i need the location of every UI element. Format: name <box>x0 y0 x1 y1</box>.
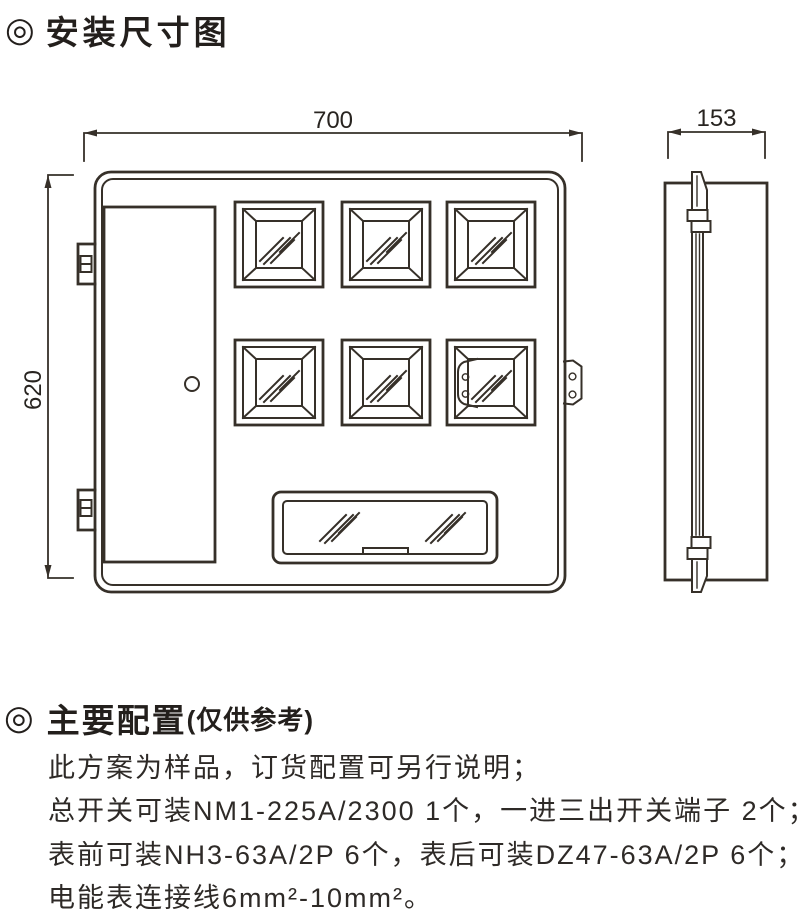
lock-hole <box>185 377 199 391</box>
meter-box-side-view <box>665 172 767 592</box>
meter-window <box>342 202 430 287</box>
box-outer-outline <box>95 172 565 592</box>
double-circle-bullet-icon: ◎ <box>4 701 34 735</box>
installation-dimension-diagram: 700 620 153 <box>0 0 800 680</box>
config-section-subtitle: (仅供参考) <box>187 700 314 737</box>
config-line: 此方案为样品，订货配置可另行说明； <box>48 751 541 785</box>
dimension-width-label: 700 <box>313 107 353 134</box>
side-body <box>665 183 767 580</box>
dimension-depth: 153 <box>668 105 765 158</box>
config-section-title: 主要配置 <box>47 694 187 742</box>
hinge-top <box>78 244 95 284</box>
dimension-width: 700 <box>84 107 582 161</box>
hinge-bottom <box>78 490 95 530</box>
catalog-page: ◎ 安装尺寸图 700 620 <box>0 0 800 912</box>
meter-window <box>447 340 535 425</box>
dimension-depth-label: 153 <box>696 105 736 132</box>
mounting-bracket <box>564 361 582 405</box>
dimension-height-label: 620 <box>20 370 47 410</box>
meter-window <box>235 340 323 425</box>
config-line: 表前可装NH3-63A/2P 6个，表后可装DZ47-63A/2P 6个； <box>48 838 800 872</box>
meter-window <box>235 202 323 287</box>
meter-window <box>447 202 535 287</box>
config-section-header: ◎ 主要配置 (仅供参考) <box>4 694 314 742</box>
config-line: 总开关可装NM1-225A/2300 1个，一进三出开关端子 2个； <box>48 794 800 828</box>
breaker-window <box>273 492 497 563</box>
dimension-height: 620 <box>20 175 73 578</box>
config-line: 电能表连接线6mm²-10mm²。 <box>48 881 433 912</box>
meter-window <box>342 340 430 425</box>
meter-box-front-view <box>78 172 582 592</box>
hinge-rod <box>688 172 711 592</box>
